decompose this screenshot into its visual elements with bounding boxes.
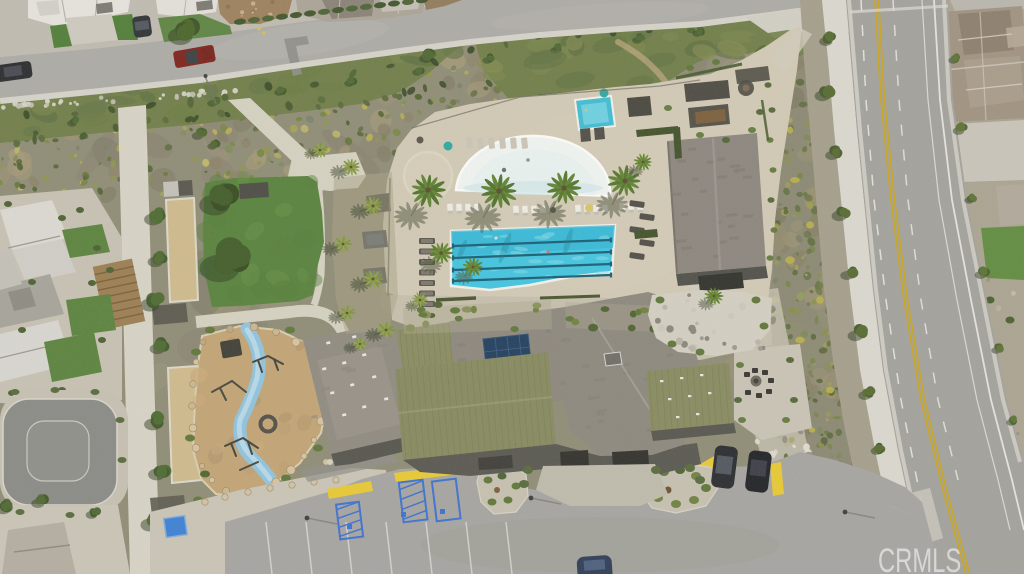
svg-text:CRMLS: CRMLS	[878, 542, 961, 574]
